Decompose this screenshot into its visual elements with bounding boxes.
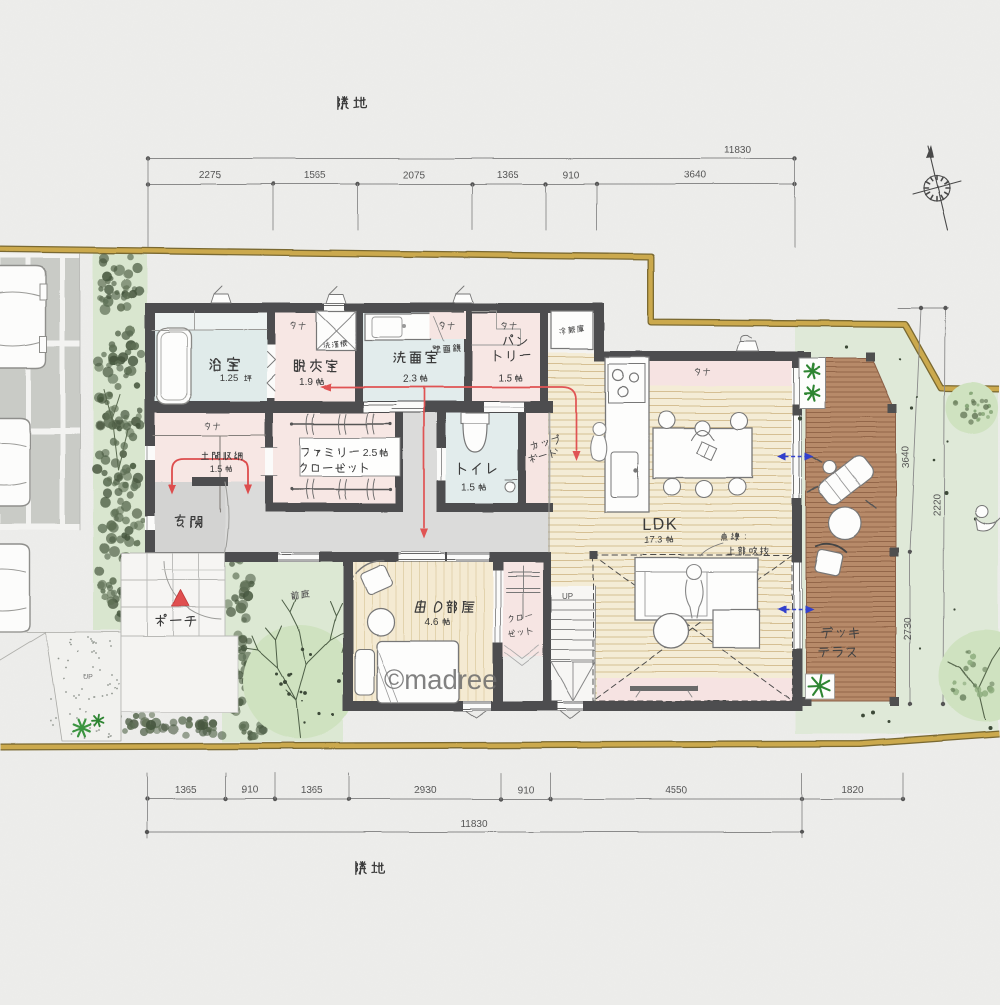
svg-text:LDK: LDK (642, 516, 679, 534)
svg-text:2275: 2275 (199, 170, 222, 181)
svg-text:1365: 1365 (175, 785, 198, 796)
svg-text:910: 910 (242, 785, 259, 796)
svg-text:1.5: 1.5 (210, 464, 223, 474)
svg-text:1.25: 1.25 (220, 373, 239, 384)
svg-text:1.5: 1.5 (461, 482, 475, 493)
svg-text:2220: 2220 (932, 493, 943, 516)
svg-text:1365: 1365 (301, 785, 324, 796)
svg-text:17.3: 17.3 (644, 535, 663, 546)
svg-text:2.3: 2.3 (403, 374, 417, 385)
svg-text:1565: 1565 (304, 170, 327, 181)
svg-text:©madree: ©madree (384, 664, 498, 695)
svg-text:3640: 3640 (684, 170, 707, 181)
svg-text:11830: 11830 (460, 819, 488, 830)
svg-text:UP: UP (83, 674, 93, 681)
svg-text:2075: 2075 (403, 170, 426, 181)
svg-text:910: 910 (518, 785, 535, 796)
svg-text:11830: 11830 (723, 145, 751, 156)
svg-text:1365: 1365 (497, 170, 520, 181)
svg-text:2730: 2730 (903, 617, 914, 640)
svg-text:2930: 2930 (414, 785, 437, 796)
svg-text:1.9: 1.9 (299, 377, 313, 388)
svg-text:2.5: 2.5 (363, 447, 378, 459)
svg-text:1.5: 1.5 (498, 373, 512, 384)
svg-text:UP: UP (561, 592, 572, 601)
svg-text:910: 910 (563, 170, 580, 181)
svg-text:1820: 1820 (841, 785, 864, 796)
svg-text:4550: 4550 (665, 785, 688, 796)
svg-text:4.6: 4.6 (425, 617, 439, 628)
svg-text:3640: 3640 (901, 445, 912, 468)
